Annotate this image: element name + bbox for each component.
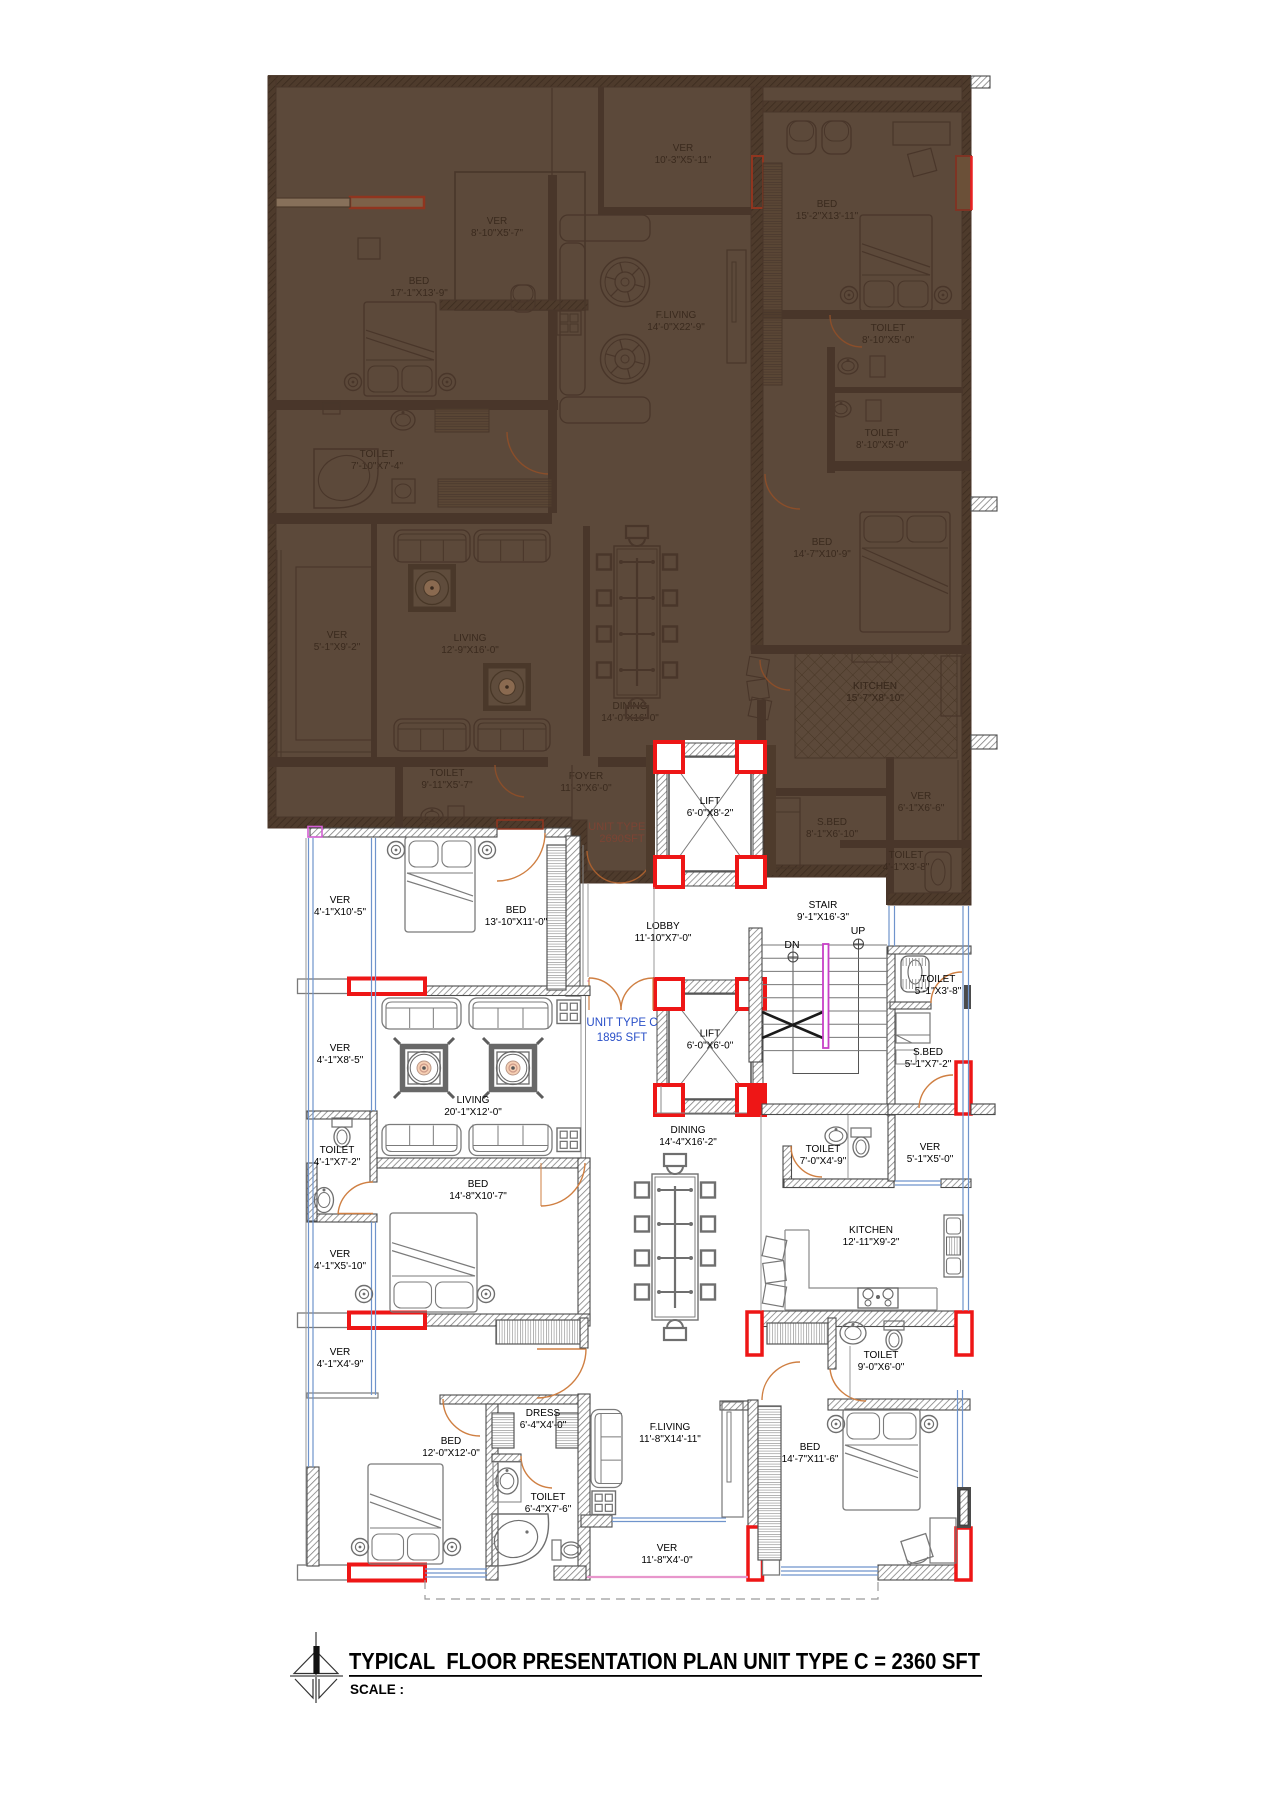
svg-text:TOILET: TOILET (430, 768, 465, 779)
svg-text:UNIT TYPE B: UNIT TYPE B (588, 821, 655, 833)
svg-text:5'-1"X9'-2": 5'-1"X9'-2" (314, 642, 361, 653)
svg-text:DINING: DINING (671, 1125, 706, 1136)
svg-text:6'-1"X6'-6": 6'-1"X6'-6" (898, 803, 945, 814)
svg-text:TOILET: TOILET (360, 449, 395, 460)
svg-text:TOILET: TOILET (806, 1144, 841, 1155)
svg-text:12'-9"X16'-0": 12'-9"X16'-0" (441, 645, 499, 656)
svg-text:12'-0"X12'-0": 12'-0"X12'-0" (422, 1448, 480, 1459)
svg-text:11'-10"X7'-0": 11'-10"X7'-0" (635, 933, 692, 944)
svg-text:LIFT: LIFT (700, 796, 721, 807)
svg-text:BED: BED (506, 905, 527, 916)
svg-text:6'-0"X6'-0": 6'-0"X6'-0" (687, 1041, 734, 1052)
svg-text:BED: BED (409, 276, 430, 287)
svg-text:LOBBY: LOBBY (646, 921, 680, 932)
svg-text:20'-1"X12'-0": 20'-1"X12'-0" (444, 1107, 502, 1118)
svg-text:STAIR: STAIR (809, 900, 838, 911)
svg-text:VER: VER (327, 630, 348, 641)
svg-text:KITCHEN: KITCHEN (853, 681, 897, 692)
svg-text:5'-1"X7'-2": 5'-1"X7'-2" (905, 1059, 952, 1070)
svg-text:TOILET: TOILET (865, 428, 900, 439)
svg-text:12'-11"X9'-2": 12'-11"X9'-2" (843, 1237, 900, 1248)
svg-text:6'-0"X8'-2": 6'-0"X8'-2" (687, 808, 734, 819)
svg-text:4'-1"X7'-2": 4'-1"X7'-2" (314, 1157, 361, 1168)
svg-text:13'-10"X11'-0": 13'-10"X11'-0" (485, 917, 548, 928)
svg-text:VER: VER (330, 1347, 351, 1358)
svg-text:11'-3"X6'-0": 11'-3"X6'-0" (560, 783, 612, 794)
svg-text:TOILET: TOILET (871, 323, 906, 334)
svg-text:S.BED: S.BED (913, 1047, 943, 1058)
svg-text:14'-7"X11'-6": 14'-7"X11'-6" (782, 1454, 839, 1465)
svg-text:SCALE :: SCALE : (350, 1682, 404, 1697)
svg-text:14'-7"X10'-9": 14'-7"X10'-9" (793, 549, 851, 560)
svg-text:17'-1"X13'-9": 17'-1"X13'-9" (390, 288, 448, 299)
svg-text:TOILET: TOILET (864, 1350, 899, 1361)
svg-text:14'-8"X10'-7": 14'-8"X10'-7" (449, 1191, 507, 1202)
svg-text:KITCHEN: KITCHEN (849, 1225, 893, 1236)
svg-text:7'-0"X4'-9": 7'-0"X4'-9" (800, 1156, 847, 1167)
svg-text:VER: VER (673, 143, 694, 154)
svg-text:DRESS: DRESS (526, 1408, 561, 1419)
svg-text:TOILET: TOILET (320, 1145, 355, 1156)
svg-text:DN: DN (784, 939, 799, 951)
svg-text:LIFT: LIFT (700, 1029, 721, 1040)
svg-text:10'-3"X5'-11": 10'-3"X5'-11" (655, 155, 712, 166)
svg-text:BED: BED (441, 1436, 462, 1447)
svg-text:5'-1"X3'-8": 5'-1"X3'-8" (915, 986, 962, 997)
svg-text:4'-1"X10'-5": 4'-1"X10'-5" (314, 907, 367, 918)
svg-text:4'-1"X8'-5": 4'-1"X8'-5" (317, 1055, 364, 1066)
svg-text:8'-10"X5'-0": 8'-10"X5'-0" (862, 335, 915, 346)
svg-text:7'-10"X7'-4": 7'-10"X7'-4" (351, 461, 404, 472)
svg-text:BED: BED (468, 1179, 489, 1190)
svg-text:BED: BED (817, 199, 838, 210)
svg-text:4'-1"X5'-10": 4'-1"X5'-10" (314, 1261, 367, 1272)
svg-text:11'-8"X14'-11": 11'-8"X14'-11" (639, 1434, 701, 1445)
svg-text:S.BED: S.BED (817, 817, 847, 828)
svg-text:9'-11"X5'-7": 9'-11"X5'-7" (421, 780, 473, 791)
svg-text:VER: VER (657, 1543, 678, 1554)
svg-text:BED: BED (812, 537, 833, 548)
svg-text:UP: UP (851, 925, 866, 937)
svg-text:VER: VER (330, 895, 351, 906)
svg-text:9'-1"X16'-3": 9'-1"X16'-3" (797, 912, 850, 923)
svg-text:8'-1"X6'-10": 8'-1"X6'-10" (806, 829, 859, 840)
svg-text:VER: VER (487, 216, 508, 227)
svg-text:F.LIVING: F.LIVING (650, 1422, 691, 1433)
svg-text:FOYER: FOYER (569, 771, 603, 782)
svg-text:LIVING: LIVING (457, 1095, 490, 1106)
svg-text:1895 SFT: 1895 SFT (597, 1032, 648, 1044)
svg-text:15'-2"X13'-11": 15'-2"X13'-11" (796, 211, 859, 222)
svg-text:VER: VER (330, 1249, 351, 1260)
svg-text:4'-1"X4'-9": 4'-1"X4'-9" (317, 1359, 364, 1370)
svg-text:9'-0"X6'-0": 9'-0"X6'-0" (858, 1362, 905, 1373)
svg-text:TOILET: TOILET (531, 1492, 566, 1503)
svg-text:14'-4"X16'-2": 14'-4"X16'-2" (659, 1137, 717, 1148)
svg-text:6'-4"X4'-0": 6'-4"X4'-0" (520, 1420, 567, 1431)
svg-text:15'-7"X8'-10": 15'-7"X8'-10" (846, 693, 904, 704)
svg-text:5'-1"X5'-0": 5'-1"X5'-0" (907, 1154, 954, 1165)
svg-text:TYPICAL FLOOR PRESENTATION PL: TYPICAL FLOOR PRESENTATION PLAN UNIT TYP… (349, 1648, 981, 1674)
svg-text:LIVING: LIVING (454, 633, 487, 644)
svg-text:VER: VER (920, 1142, 941, 1153)
svg-text:VER: VER (330, 1043, 351, 1054)
svg-text:4'-1"X3'-8": 4'-1"X3'-8" (883, 862, 930, 873)
svg-text:6'-4"X7'-6": 6'-4"X7'-6" (525, 1504, 572, 1515)
svg-text:11'-8"X4'-0": 11'-8"X4'-0" (641, 1555, 693, 1566)
svg-text:8'-10"X5'-0": 8'-10"X5'-0" (856, 440, 909, 451)
svg-text:14'-0"X22'-9": 14'-0"X22'-9" (647, 322, 705, 333)
svg-text:8'-10"X5'-7": 8'-10"X5'-7" (471, 228, 524, 239)
svg-text:TOILET: TOILET (921, 974, 956, 985)
svg-text:TOILET: TOILET (889, 850, 924, 861)
svg-text:UNIT TYPE C: UNIT TYPE C (586, 1017, 657, 1029)
svg-text:VER: VER (911, 791, 932, 802)
svg-text:F.LIVING: F.LIVING (656, 310, 697, 321)
svg-text:BED: BED (800, 1442, 821, 1453)
svg-text:2690SFT: 2690SFT (599, 833, 645, 845)
